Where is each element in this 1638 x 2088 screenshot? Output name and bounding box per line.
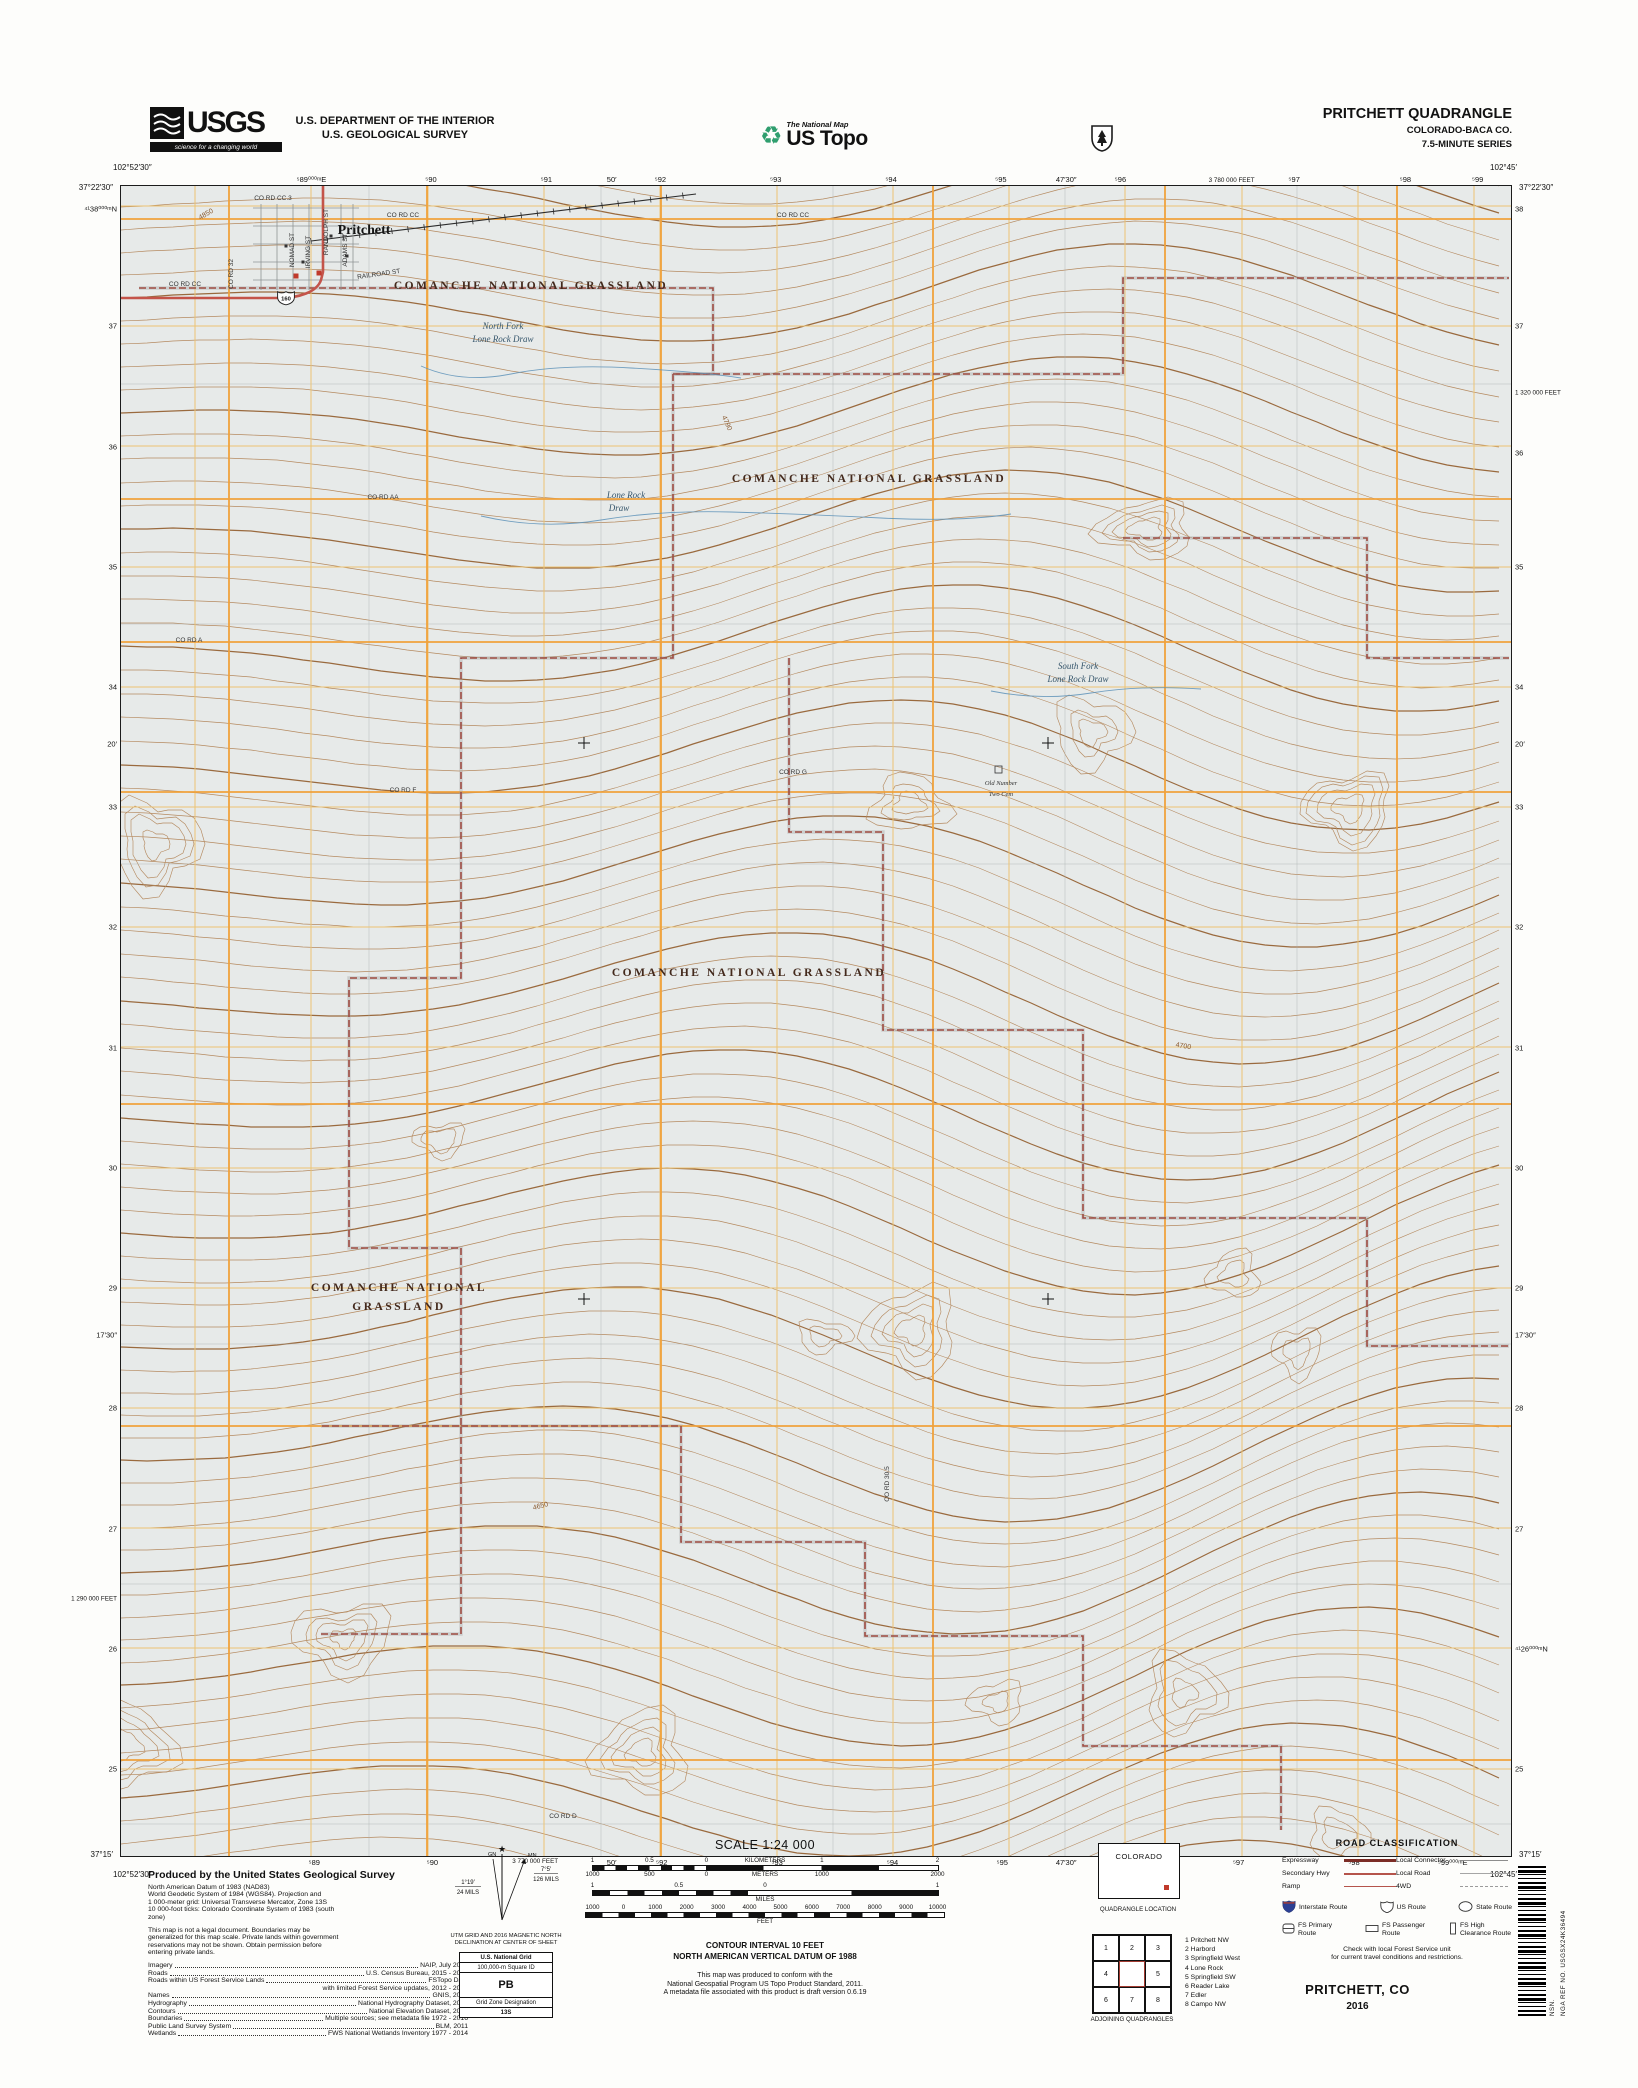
shield-label: FS Passenger Route xyxy=(1382,1922,1434,1936)
grid-tick-label: ⁵89 xyxy=(308,1858,319,1867)
adjoining-quadrangles-caption: ADJOINING QUADRANGLES xyxy=(1072,2016,1192,2023)
feet-word: FEET xyxy=(565,1918,965,1926)
grid-tick-label: 36 xyxy=(1515,449,1523,458)
grid-tick-label: 50′ xyxy=(607,175,617,184)
grid-tick-label: 33 xyxy=(1515,803,1523,812)
quadrangle-marker xyxy=(1164,1885,1169,1890)
ustopo-label: US Topo xyxy=(786,129,867,149)
adjoining-quadrangle-name: 8 Campo NW xyxy=(1185,2000,1240,2009)
grid-tick-label: ⁵95 xyxy=(997,1858,1008,1867)
grid-tick-label: 32 xyxy=(109,923,117,932)
map-label: CO RD A xyxy=(176,637,203,644)
datum-line: zone) xyxy=(148,1914,468,1922)
usng-zone: 13S xyxy=(460,2008,552,2017)
source-label: Wetlands xyxy=(148,2030,176,2038)
grid-tick-label: 20′ xyxy=(1515,739,1525,748)
svg-text:160: 160 xyxy=(281,296,291,302)
expressway-line-sample xyxy=(1344,1859,1396,1862)
production-credits: Produced by the United States Geological… xyxy=(148,1872,468,2038)
grid-tick-label: 34 xyxy=(1515,683,1523,692)
datum-line: 1 000-meter grid: Universal Transverse M… xyxy=(148,1899,468,1907)
sheet-title-block: PRITCHETT, CO 2016 xyxy=(1255,1982,1460,2012)
map-label: COMANCHE NATIONAL GRASSLAND xyxy=(394,280,668,292)
current-quadrangle-cell xyxy=(1119,1961,1145,1987)
grid-tick-label: 37 xyxy=(1515,322,1523,331)
grid-tick-label: ⁵93 xyxy=(770,175,781,184)
legal-line: This map is not a legal document. Bounda… xyxy=(148,1927,468,1935)
road-class-row: ExpresswayLocal Connector xyxy=(1282,1854,1512,1867)
source-label: Names xyxy=(148,1992,170,2000)
us-160-shield: 160 xyxy=(278,292,295,305)
map-label: CO RD CC xyxy=(777,212,809,219)
grid-tick-label: ⁵92 xyxy=(655,175,666,184)
forest-service-note-line1: Check with local Forest Service unit xyxy=(1282,1946,1512,1954)
adjoining-quadrangle-cell: 4 xyxy=(1093,1961,1119,1987)
fs-high-shield-icon xyxy=(1449,1922,1457,1937)
grid-tick-label: ⁵91 xyxy=(541,175,552,184)
map-label: CO RD D xyxy=(549,1813,577,1820)
scale-label: 7000 xyxy=(836,1904,850,1911)
map-label: CO RD 32 xyxy=(228,259,235,289)
declination-caption-line1: UTM GRID AND 2016 MAGNETIC NORTH xyxy=(438,1933,574,1940)
adjoining-quadrangle-cell: 7 xyxy=(1119,1987,1145,2013)
grid-tick-label: 25 xyxy=(1515,1765,1523,1774)
scale-title: SCALE 1:24 000 xyxy=(565,1838,965,1852)
adjoining-quadrangle-cell: 1 xyxy=(1093,1935,1119,1961)
scale-label: KILOMETERS xyxy=(745,1857,786,1864)
usng-square-id: PB xyxy=(460,1973,552,1998)
scale-label: 1 xyxy=(820,1857,824,1864)
source-label: Boundaries xyxy=(148,2015,182,2023)
legal-line: generalized for this map scale. Private … xyxy=(148,1934,468,1942)
quadrangle-title: PRITCHETT QUADRANGLE xyxy=(1323,106,1512,122)
datum-line: North American Datum of 1983 (NAD83) xyxy=(148,1884,468,1892)
miles-word: MILES xyxy=(565,1896,965,1904)
grid-tick-label: 17′30″ xyxy=(1515,1330,1536,1339)
adjoining-quadrangle-name: 3 Springfield West xyxy=(1185,1954,1240,1963)
grid-tick-label: 1 320 000 FEET xyxy=(1515,390,1561,397)
map-sheet-year: 2016 xyxy=(1255,2001,1460,2012)
credits-heading: Produced by the United States Geological… xyxy=(148,1872,468,1880)
source-label: Contours xyxy=(148,2008,176,2016)
standard-conformance-note: This map was produced to conform with th… xyxy=(565,1972,965,1998)
svg-text:24 MILS: 24 MILS xyxy=(457,1890,479,1896)
conformance-line: National Geospatial Program US Topo Prod… xyxy=(565,1981,965,1990)
map-label: GRASSLAND xyxy=(352,1301,445,1313)
source-value: BLM, 2011 xyxy=(436,2023,468,2031)
shield-label: US Route xyxy=(1397,1904,1426,1911)
mile-scale-labels: 10.501 xyxy=(593,1882,938,1890)
datum-info: North American Datum of 1983 (NAD83)Worl… xyxy=(148,1884,468,1922)
adjoining-quadrangle-name: 2 Harbord xyxy=(1185,1945,1240,1954)
grid-tick-label: 25 xyxy=(109,1765,117,1774)
grid-tick-label: 38 xyxy=(1515,205,1523,214)
map-label: Lone Rock xyxy=(606,490,646,500)
scale-label: 3000 xyxy=(711,1904,725,1911)
grid-tick-label: 27 xyxy=(109,1524,117,1533)
road-classification-legend: ROAD CLASSIFICATION ExpresswayLocal Conn… xyxy=(1282,1838,1512,1962)
edge-labels-right: 38371 320 000 FEET36353420′333231302917′… xyxy=(1511,186,1571,1856)
corner-coordinate-ne-lon: 102°45′ xyxy=(1490,163,1517,172)
grid-tick-label: 1 290 000 FEET xyxy=(71,1595,117,1602)
adjoining-quadrangle-name: 5 Springfield SW xyxy=(1185,1973,1240,1982)
grid-tick-label: ⁵96 xyxy=(1115,175,1126,184)
road-class-label: Secondary Hwy xyxy=(1282,1870,1344,1877)
contour-interval: CONTOUR INTERVAL 10 FEET xyxy=(565,1940,965,1951)
road-class-item: State Route xyxy=(1458,1900,1512,1915)
forest-service-icon xyxy=(1090,124,1114,157)
source-row: ContoursNational Elevation Dataset, 2006 xyxy=(148,2008,468,2016)
scale-label: 0.5 xyxy=(645,1857,654,1864)
map-label: CO RD F xyxy=(390,787,417,794)
scale-label: 1000 xyxy=(585,1904,599,1911)
road-class-label: Local Road xyxy=(1396,1870,1460,1877)
adjoining-quadrangle-cell: 3 xyxy=(1145,1935,1171,1961)
grid-tick-label: 34 xyxy=(109,683,117,692)
adjoining-quadrangle-name: 4 Lone Rock xyxy=(1185,1964,1240,1973)
conformance-line: This map was produced to conform with th… xyxy=(565,1972,965,1981)
grid-tick-label: 20′ xyxy=(107,739,117,748)
grid-tick-label: 30 xyxy=(1515,1163,1523,1172)
source-value: FWS National Wetlands Inventory 1977 - 2… xyxy=(328,2030,468,2038)
grid-tick-label: ⁴¹38⁰⁰⁰ᵐN xyxy=(84,205,117,214)
scale-label: 4000 xyxy=(742,1904,756,1911)
adjoining-quadrangles-list: 1 Pritchett NW2 Harbord3 Springfield Wes… xyxy=(1185,1936,1240,2010)
source-label: Roads within US Forest Service Lands xyxy=(148,1977,264,1985)
shield-label: State Route xyxy=(1476,1904,1512,1911)
map-label: CO RD AA xyxy=(367,494,399,501)
source-row: ImageryNAIP, July 2013 xyxy=(148,1962,468,1970)
source-row: NamesGNIS, 2016 xyxy=(148,1992,468,2000)
grid-tick-label: ⁵89⁰⁰⁰ᵐE xyxy=(297,175,327,184)
road-class-label: 4WD xyxy=(1396,1883,1460,1890)
us-shield-icon xyxy=(1380,1901,1394,1915)
grid-tick-label: 3 780 000 FEET xyxy=(1209,177,1255,184)
forest-service-note-line2: for current travel conditions and restri… xyxy=(1282,1954,1512,1962)
map-label: Two Cem xyxy=(989,791,1014,798)
grid-tick-label: 30 xyxy=(109,1163,117,1172)
grid-tick-label: 28 xyxy=(109,1404,117,1413)
data-sources: ImageryNAIP, July 2013RoadsU.S. Census B… xyxy=(148,1962,468,2038)
map-frame: 160COMANCHE NATIONAL GRASSLANDCOMANCHE N… xyxy=(120,185,1512,1857)
declination-block: ★ GN MN 1°19′ 24 MILS 7°5′ 126 MILS UTM … xyxy=(438,1842,574,2018)
map-label: COMANCHE NATIONAL xyxy=(311,1282,487,1294)
grid-tick-label: ⁵97 xyxy=(1233,1858,1244,1867)
scale-label: 2000 xyxy=(680,1904,694,1911)
quadrangle-title-block: PRITCHETT QUADRANGLE COLORADO-BACA CO. 7… xyxy=(1323,106,1512,150)
scale-block: SCALE 1:24 000 10.50KILOMETERS12 1000500… xyxy=(565,1838,965,1998)
conformance-line: A metadata file associated with this pro… xyxy=(565,1989,965,1998)
usgs-tagline: science for a changing world xyxy=(150,142,282,152)
map-label: Lone Rock Draw xyxy=(1047,674,1109,684)
source-label: Roads xyxy=(148,1970,168,1978)
barcode xyxy=(1518,1866,1546,2016)
adjoining-quadrangle-name: 7 Edler xyxy=(1185,1991,1240,2000)
legal-line: reservations may not be shown. Obtain pe… xyxy=(148,1942,468,1950)
grid-tick-label: 37 xyxy=(109,322,117,331)
quadrangle-state: COLORADO-BACA CO. xyxy=(1323,125,1512,136)
road-class-item: FS Passenger Route xyxy=(1365,1922,1434,1937)
km-scale-labels: 10.50KILOMETERS12 xyxy=(593,1857,938,1865)
edge-labels-left: ⁴¹38⁰⁰⁰ᵐN3736353420′333231302917′30″2827… xyxy=(61,186,121,1856)
map-label: CO RD CC xyxy=(169,281,201,288)
national-map-icon: ♻ xyxy=(760,124,782,149)
usng-zone-label: Grid Zone Designation xyxy=(460,1998,552,2008)
corner-coordinate-se-lat: 37°15′ xyxy=(1519,1850,1542,1859)
contour-interval-note: CONTOUR INTERVAL 10 FEET NORTH AMERICAN … xyxy=(565,1940,965,1962)
declination-caption-line2: DECLINATION AT CENTER OF SHEET xyxy=(438,1940,574,1947)
declination-diagram: ★ GN MN 1°19′ 24 MILS 7°5′ 126 MILS xyxy=(440,1842,572,1926)
road-class-label: Ramp xyxy=(1282,1883,1344,1890)
dept-line1: U.S. DEPARTMENT OF THE INTERIOR xyxy=(250,114,540,128)
interstate-shield-icon xyxy=(1282,1900,1296,1915)
adjoining-quadrangle-cell: 2 xyxy=(1119,1935,1145,1961)
map-label: CO RD CC.3 xyxy=(254,195,292,202)
legal-note: This map is not a legal document. Bounda… xyxy=(148,1927,468,1957)
grid-tick-label: 33 xyxy=(109,803,117,812)
state-locator: COLORADO xyxy=(1098,1843,1180,1899)
road-class-row: Ramp4WD xyxy=(1282,1880,1512,1893)
local-connector-line-sample xyxy=(1460,1860,1508,1861)
grid-tick-label: 36 xyxy=(109,442,117,451)
usng-box: U.S. National Grid 100,000-m Square ID P… xyxy=(459,1952,553,2018)
road-class-item: Interstate Route xyxy=(1282,1900,1347,1915)
grid-tick-label: 35 xyxy=(1515,562,1523,571)
corner-coordinate-ne-lat: 37°22′30″ xyxy=(1519,183,1553,192)
scale-label: 8000 xyxy=(868,1904,882,1911)
svg-text:MN: MN xyxy=(528,1853,537,1859)
grid-tick-label: 29 xyxy=(109,1284,117,1293)
corner-coordinate-sw-lat: 37°15′ xyxy=(91,1850,114,1859)
svg-text:GN: GN xyxy=(488,1852,496,1858)
adjoining-quadrangle-cell: 6 xyxy=(1093,1987,1119,2013)
legal-line: entering private lands. xyxy=(148,1949,468,1957)
road-class-item: FS Primary Route xyxy=(1282,1922,1350,1937)
source-row: with limited Forest Service updates, 201… xyxy=(148,1985,468,1993)
source-row: HydrographyNational Hydrography Dataset,… xyxy=(148,2000,468,2008)
grid-tick-label: ⁵97 xyxy=(1288,175,1299,184)
nsn-label: NSN. xyxy=(1549,1866,1557,2016)
scale-label: 0 xyxy=(705,1871,709,1878)
state-name: COLORADO xyxy=(1099,1852,1179,1861)
state-shield-icon xyxy=(1458,1901,1473,1914)
svg-text:★: ★ xyxy=(498,1844,506,1854)
meter-scale-labels: 10005000METERS10002000 xyxy=(593,1871,938,1882)
road-class-item: FS High Clearance Route xyxy=(1449,1922,1512,1937)
scale-label: 0.5 xyxy=(674,1882,683,1889)
scale-label: 6000 xyxy=(805,1904,819,1911)
adjoining-quadrangle-name: 6 Reader Lake xyxy=(1185,1982,1240,1991)
datum-line: World Geodetic System of 1984 (WGS84). P… xyxy=(148,1891,468,1899)
quadrangle-location-caption: QUADRANGLE LOCATION xyxy=(1076,1906,1200,1913)
road-class-item: US Route xyxy=(1380,1900,1426,1915)
secondary-line-sample xyxy=(1344,1873,1396,1875)
scale-label: 0 xyxy=(763,1882,767,1889)
road-class-row: Secondary HwyLocal Road xyxy=(1282,1867,1512,1880)
scale-label: 10000 xyxy=(929,1904,947,1911)
local-road-line-sample xyxy=(1460,1873,1508,1874)
scale-label: 1 xyxy=(591,1857,595,1864)
scale-label: 1 xyxy=(936,1882,940,1889)
shield-label: Interstate Route xyxy=(1299,1904,1347,1911)
grid-tick-label: 35 xyxy=(109,562,117,571)
fs-primary-shield-icon xyxy=(1282,1923,1295,1936)
map-label: CO RD CC xyxy=(387,212,419,219)
corner-coordinate-nw-lon: 102°52′30″ xyxy=(113,163,152,172)
grid-tick-label: ⁵90 xyxy=(425,175,436,184)
feet-scale-bar xyxy=(585,1912,945,1918)
grid-tick-label: ⁴¹26⁰⁰⁰ᵐN xyxy=(1515,1644,1548,1653)
fourwd-line-sample xyxy=(1460,1886,1508,1887)
svg-text:126 MILS: 126 MILS xyxy=(533,1877,559,1883)
dept-line2: U.S. GEOLOGICAL SURVEY xyxy=(250,128,540,142)
source-label: Hydrography xyxy=(148,2000,187,2008)
grid-tick-label: 47′30″ xyxy=(1056,1858,1077,1867)
grid-tick-label: 31 xyxy=(1515,1043,1523,1052)
map-label: IRVING ST xyxy=(305,236,312,268)
ustopo-logo: ♻ The National Map US Topo xyxy=(760,120,868,149)
map-label: COMANCHE NATIONAL GRASSLAND xyxy=(612,967,886,979)
map-label: ADAMS ST xyxy=(342,233,349,266)
scale-label: 1 xyxy=(591,1882,595,1889)
road-class-label: Expressway xyxy=(1282,1857,1344,1864)
map-label: Lone Rock Draw xyxy=(472,334,534,344)
adjoining-quadrangles-grid: 12345678 xyxy=(1092,1934,1172,2014)
feet-scale-labels: 1000010002000300040005000600070008000900… xyxy=(593,1904,938,1912)
scale-label: 0 xyxy=(705,1857,709,1864)
scale-label: 1000 xyxy=(648,1904,662,1911)
topo-map-sheet: USGS science for a changing world U.S. D… xyxy=(0,0,1638,2088)
source-row: BoundariesMultiple sources; see metadata… xyxy=(148,2015,468,2023)
grid-tick-label: 31 xyxy=(109,1043,117,1052)
grid-tick-label: ⁵98 xyxy=(1400,175,1411,184)
source-label: Imagery xyxy=(148,1962,173,1970)
adjoining-quadrangle-cell: 5 xyxy=(1145,1961,1171,1987)
source-row: Roads within US Forest Service LandsFSTo… xyxy=(148,1977,468,1985)
scale-label: 1000 xyxy=(815,1871,829,1878)
barcode-block: NSN. NGA REF NO. USGSX24K36494 xyxy=(1518,1866,1568,2016)
grid-tick-label: ⁵94 xyxy=(885,175,896,184)
map-label: Draw xyxy=(608,503,630,513)
adjoining-quadrangle-name: 1 Pritchett NW xyxy=(1185,1936,1240,1945)
usng-title: U.S. National Grid xyxy=(460,1953,552,1963)
source-row: WetlandsFWS National Wetlands Inventory … xyxy=(148,2030,468,2038)
map-label: CO RD 30.5 xyxy=(884,1466,891,1502)
road-classification-title: ROAD CLASSIFICATION xyxy=(1282,1838,1512,1848)
map-label: NOMAD ST xyxy=(289,233,296,267)
grid-tick-label: 32 xyxy=(1515,923,1523,932)
adjoining-quadrangle-cell: 8 xyxy=(1145,1987,1171,2013)
declination-caption: UTM GRID AND 2016 MAGNETIC NORTH DECLINA… xyxy=(438,1933,574,1947)
source-row: Public Land Survey SystemBLM, 2011 xyxy=(148,2023,468,2031)
edge-labels-top: ⁵89⁰⁰⁰ᵐE⁵90⁵9150′⁵92⁵93⁵94⁵9547′30″⁵963 … xyxy=(121,172,1511,186)
map-label: South Fork xyxy=(1058,661,1099,671)
shield-label: FS High Clearance Route xyxy=(1460,1922,1512,1936)
grid-tick-label: 27 xyxy=(1515,1524,1523,1533)
department-heading: U.S. DEPARTMENT OF THE INTERIOR U.S. GEO… xyxy=(250,114,540,142)
forest-service-note: Check with local Forest Service unit for… xyxy=(1282,1946,1512,1962)
corner-coordinate-nw-lat: 37°22′30″ xyxy=(79,183,113,192)
mile-scale-bar xyxy=(592,1890,939,1896)
map-label: COMANCHE NATIONAL GRASSLAND xyxy=(732,473,1006,485)
map-label: North Fork xyxy=(482,321,525,331)
nga-ref-label: NGA REF NO. USGSX24K36494 xyxy=(1560,1866,1568,2016)
map-canvas: 160COMANCHE NATIONAL GRASSLANDCOMANCHE N… xyxy=(121,186,1511,1856)
map-label: Old Number xyxy=(985,780,1018,787)
grid-tick-label: ⁵90 xyxy=(427,1858,438,1867)
grid-tick-label: 29 xyxy=(1515,1284,1523,1293)
corner-coordinate-sw-lon: 102°52′30″ xyxy=(113,1870,152,1879)
scale-label: 5000 xyxy=(774,1904,788,1911)
source-label: Public Land Survey System xyxy=(148,2023,231,2031)
ramp-line-sample xyxy=(1344,1886,1396,1887)
source-row: RoadsU.S. Census Bureau, 2015 - 2016 xyxy=(148,1970,468,1978)
fs-passenger-shield-icon xyxy=(1365,1924,1379,1935)
usng-subtitle: 100,000-m Square ID xyxy=(460,1963,552,1973)
vertical-datum: NORTH AMERICAN VERTICAL DATUM OF 1988 xyxy=(565,1951,965,1962)
svg-text:1°19′: 1°19′ xyxy=(461,1880,475,1886)
datum-line: 10 000-foot ticks: Colorado Coordinate S… xyxy=(148,1906,468,1914)
grid-tick-label: 47′30″ xyxy=(1056,175,1077,184)
quadrangle-series: 7.5-MINUTE SERIES xyxy=(1323,139,1512,150)
grid-tick-label: ⁵99 xyxy=(1472,175,1483,184)
map-label: CO RD G xyxy=(779,769,807,776)
scale-label: 1000 xyxy=(585,1871,599,1878)
scale-label: 500 xyxy=(644,1871,655,1878)
usgs-wave-icon xyxy=(150,107,184,139)
road-class-label: Local Connector xyxy=(1396,1857,1460,1864)
grid-tick-label: 26 xyxy=(109,1644,117,1653)
grid-tick-label: 17′30″ xyxy=(96,1330,117,1339)
grid-tick-label: 28 xyxy=(1515,1404,1523,1413)
scale-label: 0 xyxy=(622,1904,626,1911)
shield-label: FS Primary Route xyxy=(1298,1922,1350,1936)
scale-label: 2 xyxy=(936,1857,940,1864)
scale-label: 9000 xyxy=(899,1904,913,1911)
scale-label: 2000 xyxy=(930,1871,944,1878)
grid-tick-label: ⁵95 xyxy=(995,175,1006,184)
map-sheet-name: PRITCHETT, CO xyxy=(1255,1982,1460,1997)
map-label: RANDOLPH ST xyxy=(323,209,330,255)
scale-label: METERS xyxy=(752,1871,778,1878)
svg-text:7°5′: 7°5′ xyxy=(541,1867,552,1873)
